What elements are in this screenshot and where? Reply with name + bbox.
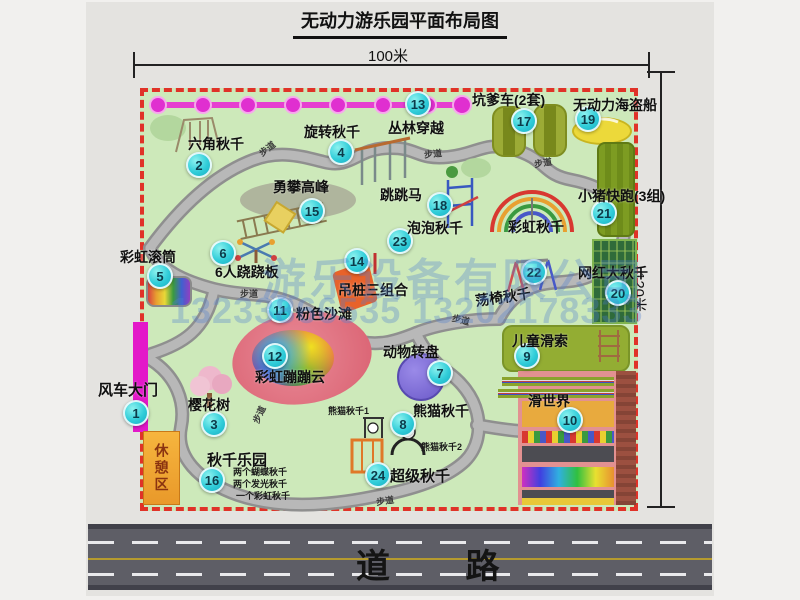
dim-top-tick-right xyxy=(648,52,650,78)
badge-15: 15 xyxy=(299,198,325,224)
path-label-4: 步道 xyxy=(240,287,258,300)
label-swing-park-item-3: 一个彩虹秋千 xyxy=(236,489,290,502)
dim-top-label: 100米 xyxy=(368,45,408,66)
slide-world-tower xyxy=(616,371,636,505)
badge-7: 7 xyxy=(427,360,453,386)
label-kart-2sets: 坑爹车(2套) xyxy=(472,90,545,110)
slide-band-dark-1 xyxy=(522,446,614,462)
label-super-swing: 超级秋千 xyxy=(390,465,450,486)
label-peak-climbing: 勇攀高峰 xyxy=(273,177,329,197)
badge-24: 24 xyxy=(365,462,391,488)
path-label-7: 步道 xyxy=(375,493,395,508)
label-pig-run: 小猪快跑(3组) xyxy=(578,186,665,206)
page-title: 无动力游乐园平面布局图 xyxy=(0,7,800,39)
label-six-person-seesaw: 6人跷跷板 xyxy=(215,262,279,282)
label-bubble-swing: 泡泡秋千 xyxy=(407,218,463,238)
rest-area-label: 休憩区 xyxy=(152,443,172,494)
slide-band-dark-2 xyxy=(522,490,614,498)
kart-track-2 xyxy=(533,104,567,157)
label-rainbow-swing: 彩虹秋千 xyxy=(508,217,564,237)
road: 道 路 xyxy=(88,524,712,590)
label-hexagon-swing: 六角秋千 xyxy=(188,134,244,154)
badge-4: 4 xyxy=(328,139,354,165)
badge-17: 17 xyxy=(511,108,537,134)
badge-2: 2 xyxy=(186,152,212,178)
badge-12: 12 xyxy=(262,343,288,369)
label-windmill-gate: 风车大门 xyxy=(98,379,158,400)
dim-top-tick-left xyxy=(133,52,135,78)
label-animal-carousel: 动物转盘 xyxy=(383,342,439,362)
label-panda-swing: 熊猫秋千 xyxy=(413,401,469,421)
badge-11: 11 xyxy=(267,297,293,323)
badge-22: 22 xyxy=(521,259,547,285)
slide-band-rainbow xyxy=(522,467,614,487)
dim-right-line xyxy=(660,72,662,508)
label-panda-swing-1: 熊猫秋千1 xyxy=(328,404,369,417)
path-label-2: 步道 xyxy=(423,146,442,161)
rest-area-box: 休憩区 xyxy=(143,431,180,505)
label-panda-swing-2: 熊猫秋千2 xyxy=(421,440,462,453)
badge-13: 13 xyxy=(405,91,431,117)
slide-lane-1 xyxy=(502,377,614,386)
badge-14: 14 xyxy=(344,248,370,274)
park-layout-map: 无动力游乐园平面布局图 100米 120米 xyxy=(0,0,800,600)
badge-20: 20 xyxy=(605,280,631,306)
label-big-swing: 网红大秋千 xyxy=(578,263,648,283)
label-pink-beach: 粉色沙滩 xyxy=(296,304,352,324)
label-rainbow-roller: 彩虹滚筒 xyxy=(120,247,176,267)
label-rotating-swing: 旋转秋千 xyxy=(304,122,360,142)
label-hanging-pile-combo: 吊桩三组合 xyxy=(338,280,408,300)
slide-band-yellow xyxy=(522,498,614,505)
badge-16: 16 xyxy=(199,467,225,493)
badge-18: 18 xyxy=(427,192,453,218)
road-label: 道 路 xyxy=(356,539,503,588)
label-pirate-ship: 无动力海盗船 xyxy=(573,95,657,115)
label-cherry-tree: 樱花树 xyxy=(188,395,230,415)
label-slide-world: 滑世界 xyxy=(528,391,570,411)
dim-right-tick-top xyxy=(647,71,675,73)
label-rainbow-bounce-cloud: 彩虹蹦蹦云 xyxy=(255,367,325,387)
badge-1: 1 xyxy=(123,400,149,426)
label-kids-zipline: 儿童滑索 xyxy=(512,331,568,351)
page-title-text: 无动力游乐园平面布局图 xyxy=(293,7,507,39)
label-jumping-horse: 跳跳马 xyxy=(380,185,422,205)
label-jungle-crossing: 丛林穿越 xyxy=(388,118,444,138)
dim-right-tick-bottom xyxy=(647,506,675,508)
